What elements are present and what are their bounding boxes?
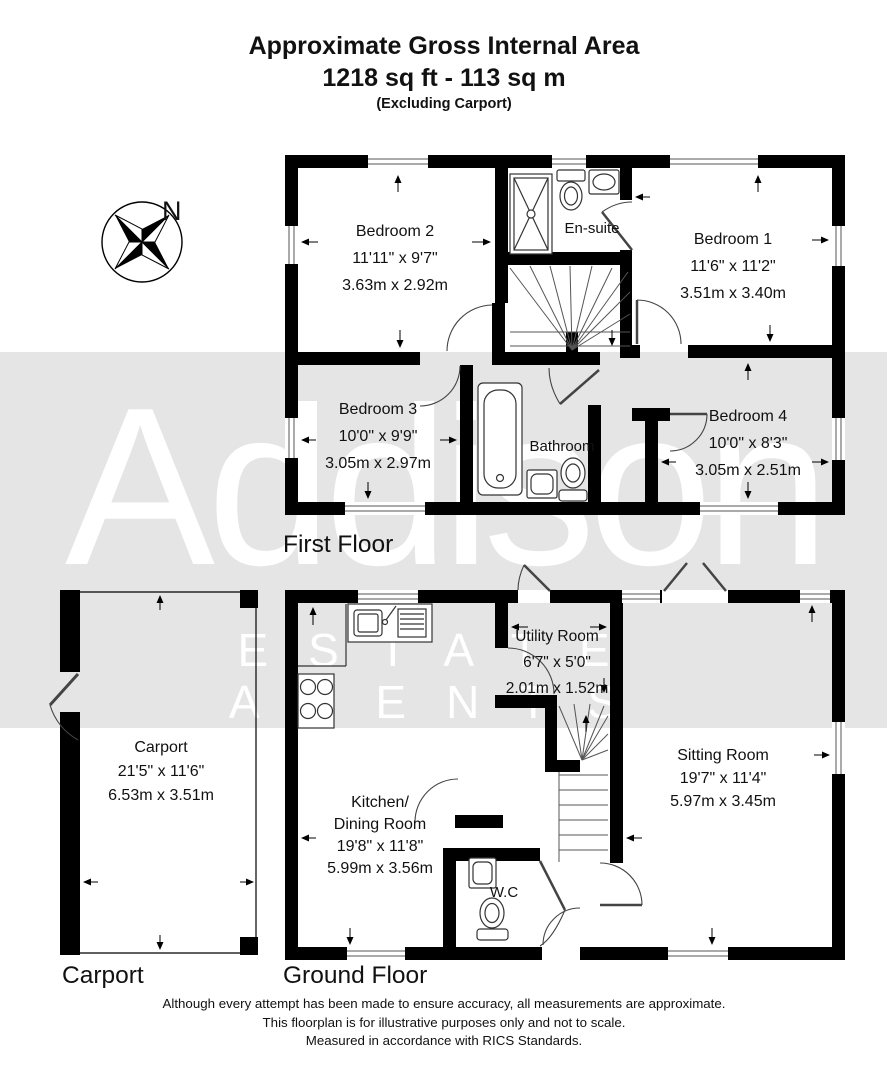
- room-label-bedroom-4: Bedroom 4 10'0" x 8'3" 3.05m x 2.51m: [695, 403, 801, 484]
- shower-icon: [510, 174, 552, 254]
- room-name: W.C: [490, 884, 518, 902]
- room-label-bedroom-2: Bedroom 2 11'11" x 9'7" 3.63m x 2.92m: [342, 218, 448, 299]
- disclaimer-line2: This floorplan is for illustrative purpo…: [8, 1014, 880, 1033]
- room-dim-metric: 3.05m x 2.51m: [695, 457, 801, 484]
- compass-north-label: N: [162, 196, 182, 227]
- room-name: En-suite: [564, 220, 619, 238]
- floor-label-carport: Carport: [62, 962, 144, 990]
- room-name: Kitchen/: [327, 792, 433, 814]
- room-dim-imperial: 19'8" x 11'8": [327, 836, 433, 858]
- sink-icon: [589, 170, 619, 194]
- room-label-bedroom-3: Bedroom 3 10'0" x 9'9" 3.05m x 2.97m: [325, 396, 431, 477]
- disclaimer: Although every attempt has been made to …: [8, 995, 880, 1051]
- room-dim-metric: 5.99m x 3.56m: [327, 858, 433, 880]
- floorplan-page: Addison ESTATE AGENTS Approximate Gross …: [0, 0, 887, 1080]
- room-dim-metric: 2.01m x 1.52m: [506, 676, 609, 702]
- bath-icon: [478, 383, 522, 495]
- toilet-icon: [557, 170, 585, 210]
- room-dim-metric: 5.97m x 3.45m: [670, 790, 776, 813]
- room-dim-metric: 3.51m x 3.40m: [680, 280, 786, 307]
- hob-icon: [298, 604, 346, 728]
- room-label-bedroom-1: Bedroom 1 11'6" x 11'2" 3.51m x 3.40m: [680, 226, 786, 307]
- toilet-icon: [477, 898, 508, 940]
- stairs-ground-floor-icon: [559, 704, 608, 862]
- room-name: Bedroom 3: [325, 396, 431, 423]
- room-dim-imperial: 21'5" x 11'6": [108, 760, 214, 784]
- room-name: Bedroom 4: [695, 403, 801, 430]
- floorplan-drawing: [0, 0, 887, 1080]
- room-name: Sitting Room: [670, 744, 776, 767]
- room-dim-imperial: 10'0" x 9'9": [325, 423, 431, 450]
- room-label-sitting: Sitting Room 19'7" x 11'4" 5.97m x 3.45m: [670, 744, 776, 813]
- floor-label-first: First Floor: [283, 531, 393, 559]
- room-name-line2: Dining Room: [327, 814, 433, 836]
- room-label-ensuite: En-suite: [564, 220, 619, 238]
- kitchen-sink-icon: [348, 604, 432, 642]
- room-name: Carport: [108, 736, 214, 760]
- room-label-wc: W.C: [490, 884, 518, 902]
- disclaimer-line1: Although every attempt has been made to …: [8, 995, 880, 1014]
- room-label-bathroom: Bathroom: [529, 438, 594, 456]
- room-dim-imperial: 10'0" x 8'3": [695, 430, 801, 457]
- room-label-carport: Carport 21'5" x 11'6" 6.53m x 3.51m: [108, 736, 214, 808]
- room-dim-metric: 6.53m x 3.51m: [108, 784, 214, 808]
- room-dim-metric: 3.05m x 2.97m: [325, 450, 431, 477]
- room-dim-imperial: 6'7" x 5'0": [506, 650, 609, 676]
- room-name: Utility Room: [506, 624, 609, 650]
- room-label-utility: Utility Room 6'7" x 5'0" 2.01m x 1.52m: [506, 624, 609, 702]
- room-dim-imperial: 11'11" x 9'7": [342, 245, 448, 272]
- room-dim-imperial: 19'7" x 11'4": [670, 767, 776, 790]
- room-dim-metric: 3.63m x 2.92m: [342, 272, 448, 299]
- room-name: Bedroom 2: [342, 218, 448, 245]
- room-name: Bedroom 1: [680, 226, 786, 253]
- room-name: Bathroom: [529, 438, 594, 456]
- floor-label-ground: Ground Floor: [283, 962, 427, 990]
- toilet-icon: [559, 458, 587, 501]
- room-label-kitchen: Kitchen/ Dining Room 19'8" x 11'8" 5.99m…: [327, 792, 433, 880]
- sink-icon: [527, 470, 557, 498]
- room-dim-imperial: 11'6" x 11'2": [680, 253, 786, 280]
- disclaimer-line3: Measured in accordance with RICS Standar…: [8, 1032, 880, 1051]
